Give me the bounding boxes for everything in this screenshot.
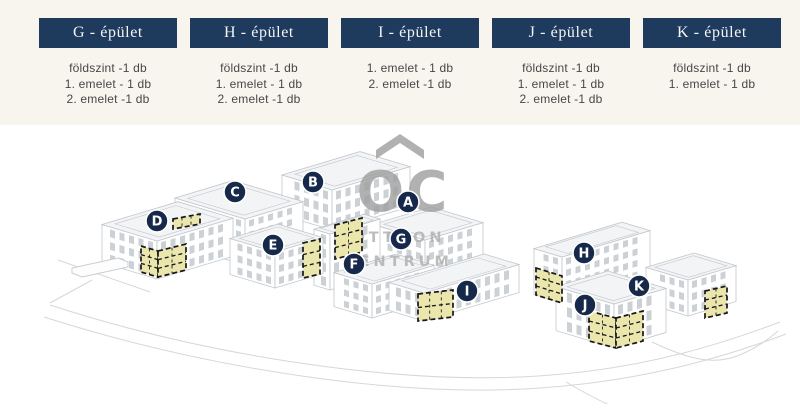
svg-text:A: A [403,196,413,211]
map-badge-b[interactable]: B [302,171,324,193]
svg-text:K: K [634,280,645,295]
svg-text:I: I [465,285,470,300]
floor-line: 1. emelet - 1 db [341,61,479,77]
building-i-button[interactable]: I - épület [341,18,479,48]
map-badge-h[interactable]: H [573,242,595,264]
map-badge-g[interactable]: G [390,228,412,250]
building-k-button[interactable]: K - épület [643,18,781,48]
roof-chevron-icon [376,134,424,159]
map-badge-e[interactable]: E [262,234,284,256]
floor-line: 2. emelet -1 db [190,92,328,108]
svg-text:G: G [396,233,407,248]
building-column-i: I - épület 1. emelet - 1 db 2. emelet -1… [341,18,479,92]
map-badge-i[interactable]: I [456,280,478,302]
floor-line: földszint -1 db [39,61,177,77]
building-j-button[interactable]: J - épület [492,18,630,48]
map-badge-a[interactable]: A [397,191,419,213]
svg-text:J: J [582,299,588,314]
map-badge-j[interactable]: J [574,294,596,316]
building-column-g: G - épület földszint -1 db 1. emelet - 1… [39,18,177,108]
available-unit-highlight [335,218,362,259]
floor-line: 2. emelet -1 db [492,92,630,108]
map-badge-f[interactable]: F [343,253,365,275]
svg-text:B: B [308,176,318,191]
svg-text:C: C [230,186,240,201]
floor-line: földszint -1 db [492,61,630,77]
floor-line: 1. emelet - 1 db [190,77,328,93]
building-column-k: K - épület földszint -1 db 1. emelet - 1… [643,18,781,92]
svg-text:F: F [350,258,359,273]
building-j-floor-list: földszint -1 db 1. emelet - 1 db 2. emel… [492,61,630,108]
availability-band: G - épület földszint -1 db 1. emelet - 1… [0,0,800,125]
floor-line: 2. emelet -1 db [341,77,479,93]
floor-line: földszint -1 db [190,61,328,77]
map-badge-c[interactable]: C [224,181,246,203]
floor-line: 1. emelet - 1 db [492,77,630,93]
floor-line: 1. emelet - 1 db [39,77,177,93]
floor-line: 1. emelet - 1 db [643,77,781,93]
building-g-floor-list: földszint -1 db 1. emelet - 1 db 2. emel… [39,61,177,108]
available-unit-highlight [705,286,727,318]
available-unit-highlight [616,311,643,348]
floor-line: 2. emelet -1 db [39,92,177,108]
available-unit-highlight [418,290,453,321]
available-unit-highlight [141,246,158,277]
building-i-floor-list: 1. emelet - 1 db 2. emelet -1 db [341,61,479,92]
map-badge-d[interactable]: D [146,210,168,232]
building-k-floor-list: földszint -1 db 1. emelet - 1 db [643,61,781,92]
building-h-floor-list: földszint -1 db 1. emelet - 1 db 2. emel… [190,61,328,108]
floor-line: földszint -1 db [643,61,781,77]
svg-text:E: E [269,239,278,254]
building-g-button[interactable]: G - épület [39,18,177,48]
building-h-button[interactable]: H - épület [190,18,328,48]
building-column-h: H - épület földszint -1 db 1. emelet - 1… [190,18,328,108]
available-unit-highlight [303,239,320,278]
map-badge-k[interactable]: K [628,275,650,297]
site-plan: OC OTTHON CENTRUM ABCDEFGHIJK [0,130,800,404]
svg-text:H: H [579,247,590,262]
building-column-j: J - épület földszint -1 db 1. emelet - 1… [492,18,630,108]
svg-text:D: D [152,215,163,230]
